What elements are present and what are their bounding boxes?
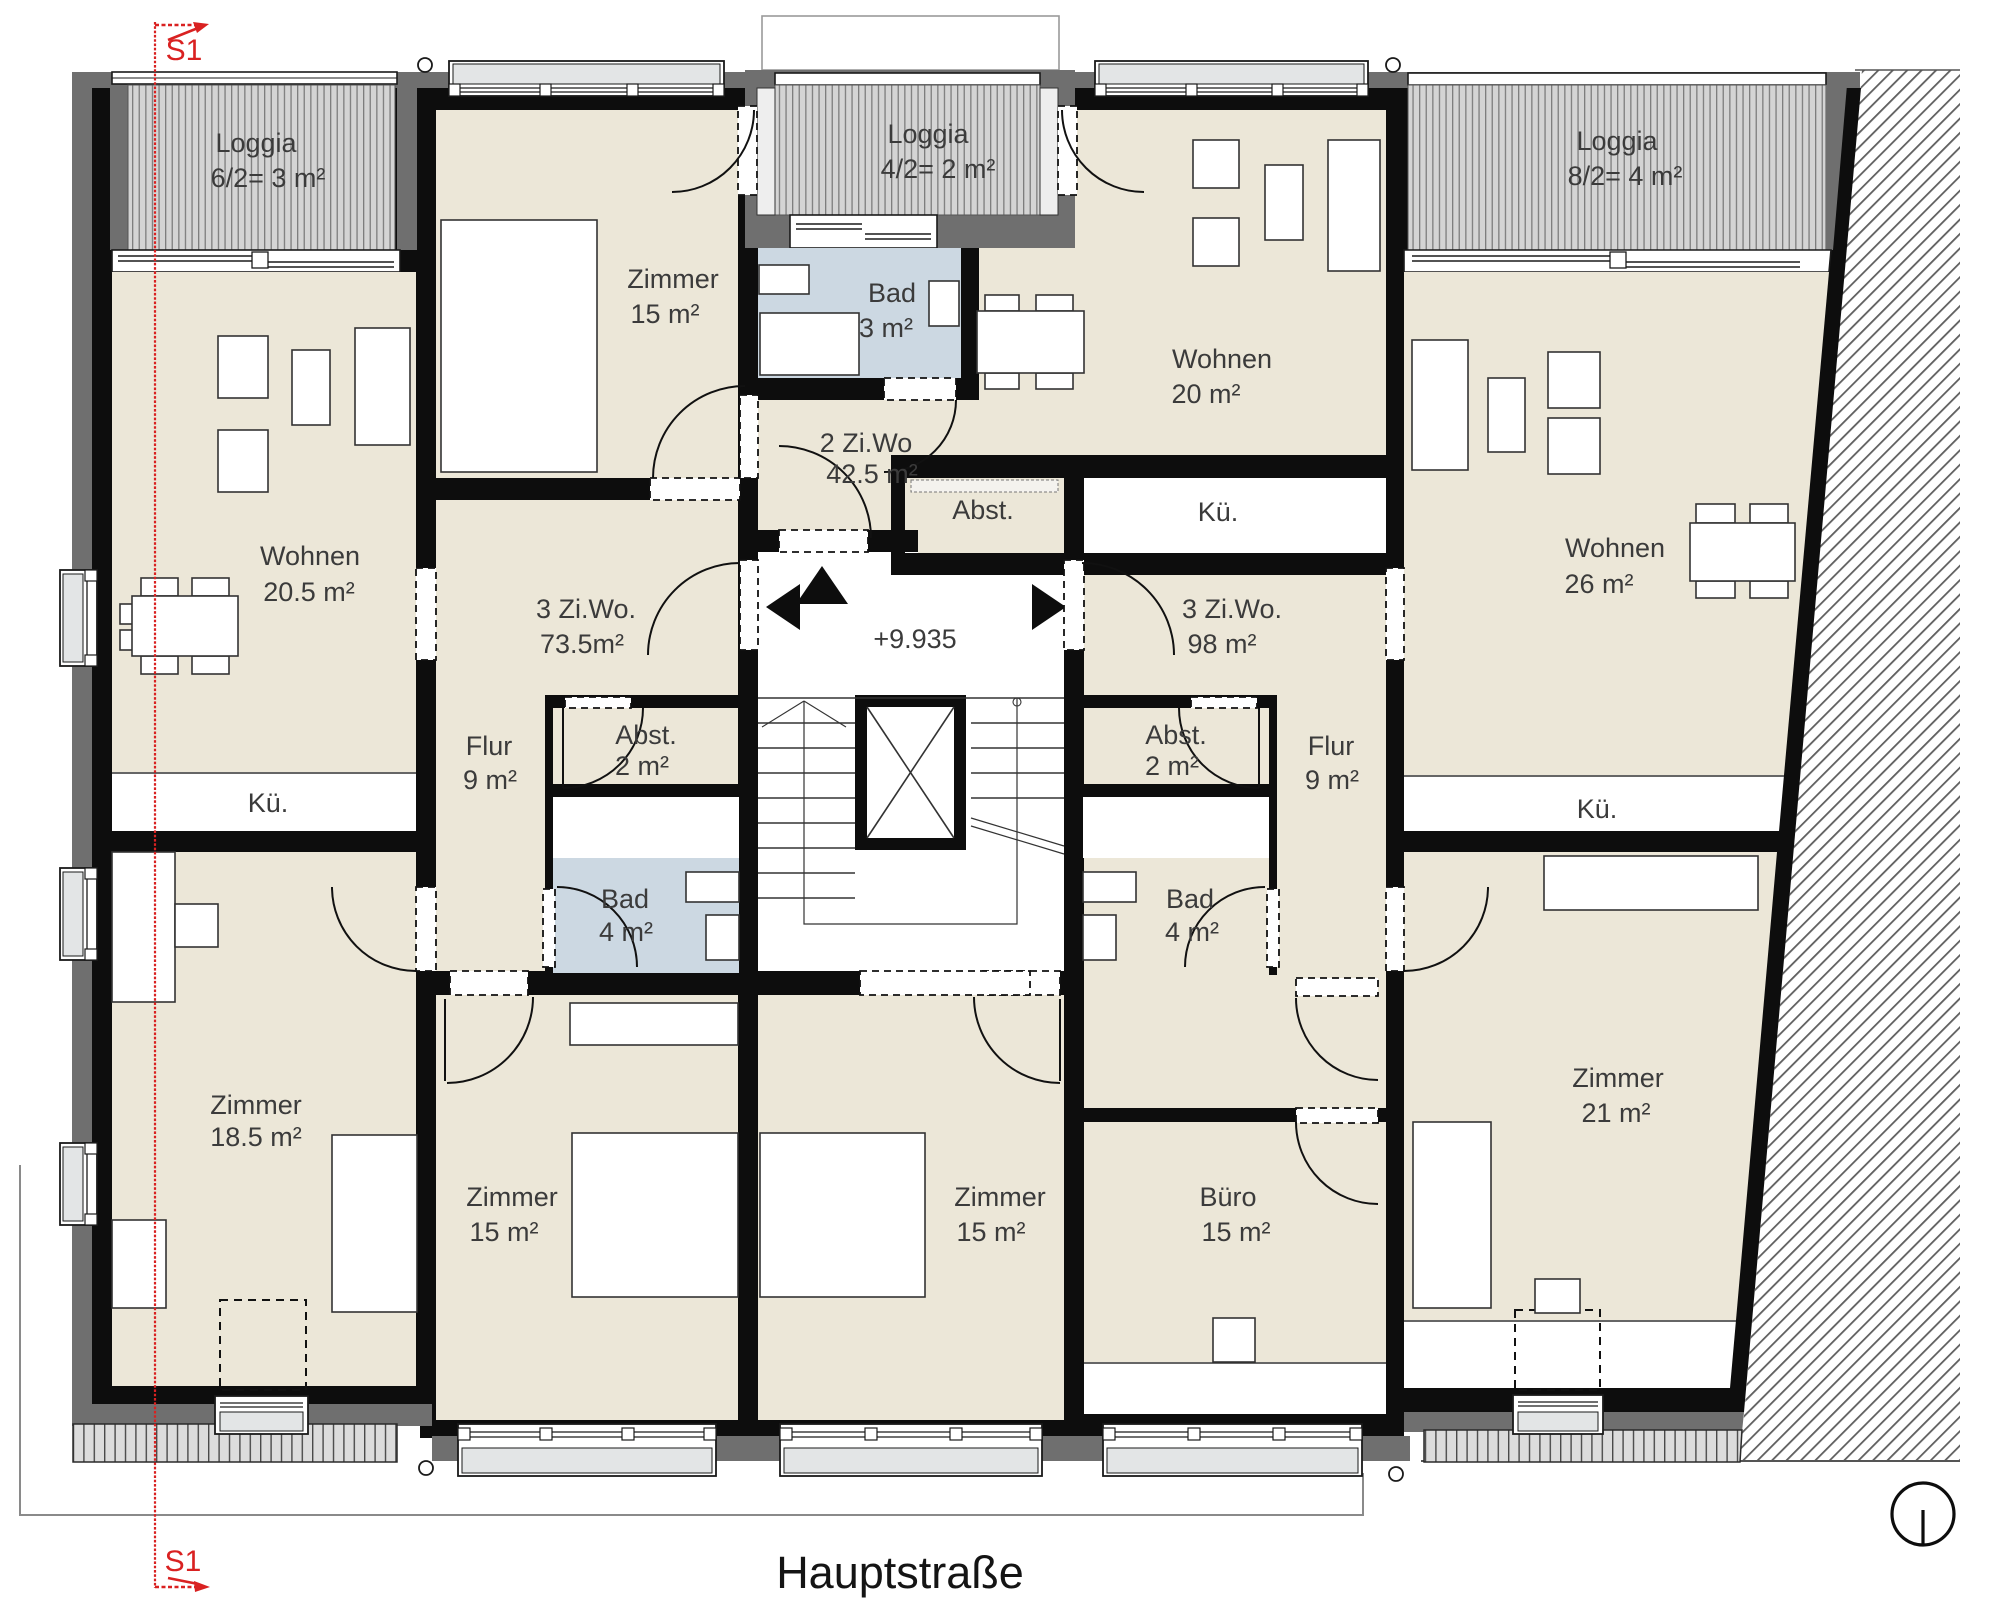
svg-text:S1: S1 xyxy=(165,1545,202,1578)
svg-text:20.5 m²: 20.5 m² xyxy=(263,577,355,607)
svg-text:20 m²: 20 m² xyxy=(1171,379,1240,409)
svg-text:15 m²: 15 m² xyxy=(956,1217,1025,1247)
svg-text:6/2= 3 m²: 6/2= 3 m² xyxy=(211,163,326,193)
svg-text:Zimmer: Zimmer xyxy=(627,264,718,294)
svg-text:3 m²: 3 m² xyxy=(859,313,913,343)
svg-text:S1: S1 xyxy=(166,34,203,67)
svg-text:2 m²: 2 m² xyxy=(1145,751,1199,781)
svg-text:98 m²: 98 m² xyxy=(1187,629,1256,659)
svg-text:Zimmer: Zimmer xyxy=(1572,1063,1663,1093)
svg-text:15 m²: 15 m² xyxy=(469,1217,538,1247)
svg-text:73.5m²: 73.5m² xyxy=(540,629,624,659)
svg-text:Kü.: Kü. xyxy=(1577,794,1618,824)
svg-text:Loggia: Loggia xyxy=(1576,126,1658,156)
svg-text:Loggia: Loggia xyxy=(215,128,297,158)
svg-text:Abst.: Abst. xyxy=(952,495,1014,525)
svg-text:3 Zi.Wo.: 3 Zi.Wo. xyxy=(536,594,636,624)
svg-text:8/2= 4 m²: 8/2= 4 m² xyxy=(1568,161,1683,191)
svg-text:26 m²: 26 m² xyxy=(1564,569,1633,599)
svg-text:Zimmer: Zimmer xyxy=(466,1182,557,1212)
svg-text:3 Zi.Wo.: 3 Zi.Wo. xyxy=(1182,594,1282,624)
svg-text:Zimmer: Zimmer xyxy=(954,1182,1045,1212)
svg-text:4 m²: 4 m² xyxy=(1165,917,1219,947)
svg-text:4/2= 2 m²: 4/2= 2 m² xyxy=(881,154,996,184)
svg-text:18.5 m²: 18.5 m² xyxy=(210,1122,302,1152)
svg-text:2 Zi.Wo: 2 Zi.Wo xyxy=(820,428,913,458)
svg-text:Flur: Flur xyxy=(466,731,513,761)
svg-text:4 m²: 4 m² xyxy=(599,917,653,947)
svg-text:Flur: Flur xyxy=(1308,731,1355,761)
svg-text:42.5 m²: 42.5 m² xyxy=(826,459,918,489)
svg-text:Bad: Bad xyxy=(601,884,649,914)
svg-text:21 m²: 21 m² xyxy=(1581,1098,1650,1128)
svg-text:Zimmer: Zimmer xyxy=(210,1090,301,1120)
svg-text:Wohnen: Wohnen xyxy=(260,541,360,571)
svg-text:Wohnen: Wohnen xyxy=(1172,344,1272,374)
svg-text:Abst.: Abst. xyxy=(1145,720,1207,750)
svg-text:15 m²: 15 m² xyxy=(1201,1217,1270,1247)
svg-text:Abst.: Abst. xyxy=(615,720,677,750)
svg-text:Kü.: Kü. xyxy=(1198,497,1239,527)
svg-text:9 m²: 9 m² xyxy=(463,765,517,795)
svg-text:Loggia: Loggia xyxy=(887,119,969,149)
svg-text:Hauptstraße: Hauptstraße xyxy=(776,1547,1024,1598)
svg-text:Bad: Bad xyxy=(868,278,916,308)
svg-text:2 m²: 2 m² xyxy=(615,751,669,781)
svg-text:+9.935: +9.935 xyxy=(873,624,956,654)
svg-text:Büro: Büro xyxy=(1199,1182,1256,1212)
svg-text:15 m²: 15 m² xyxy=(630,299,699,329)
svg-text:Wohnen: Wohnen xyxy=(1565,533,1665,563)
svg-text:9 m²: 9 m² xyxy=(1305,765,1359,795)
svg-text:Bad: Bad xyxy=(1166,884,1214,914)
svg-text:Kü.: Kü. xyxy=(248,788,289,818)
